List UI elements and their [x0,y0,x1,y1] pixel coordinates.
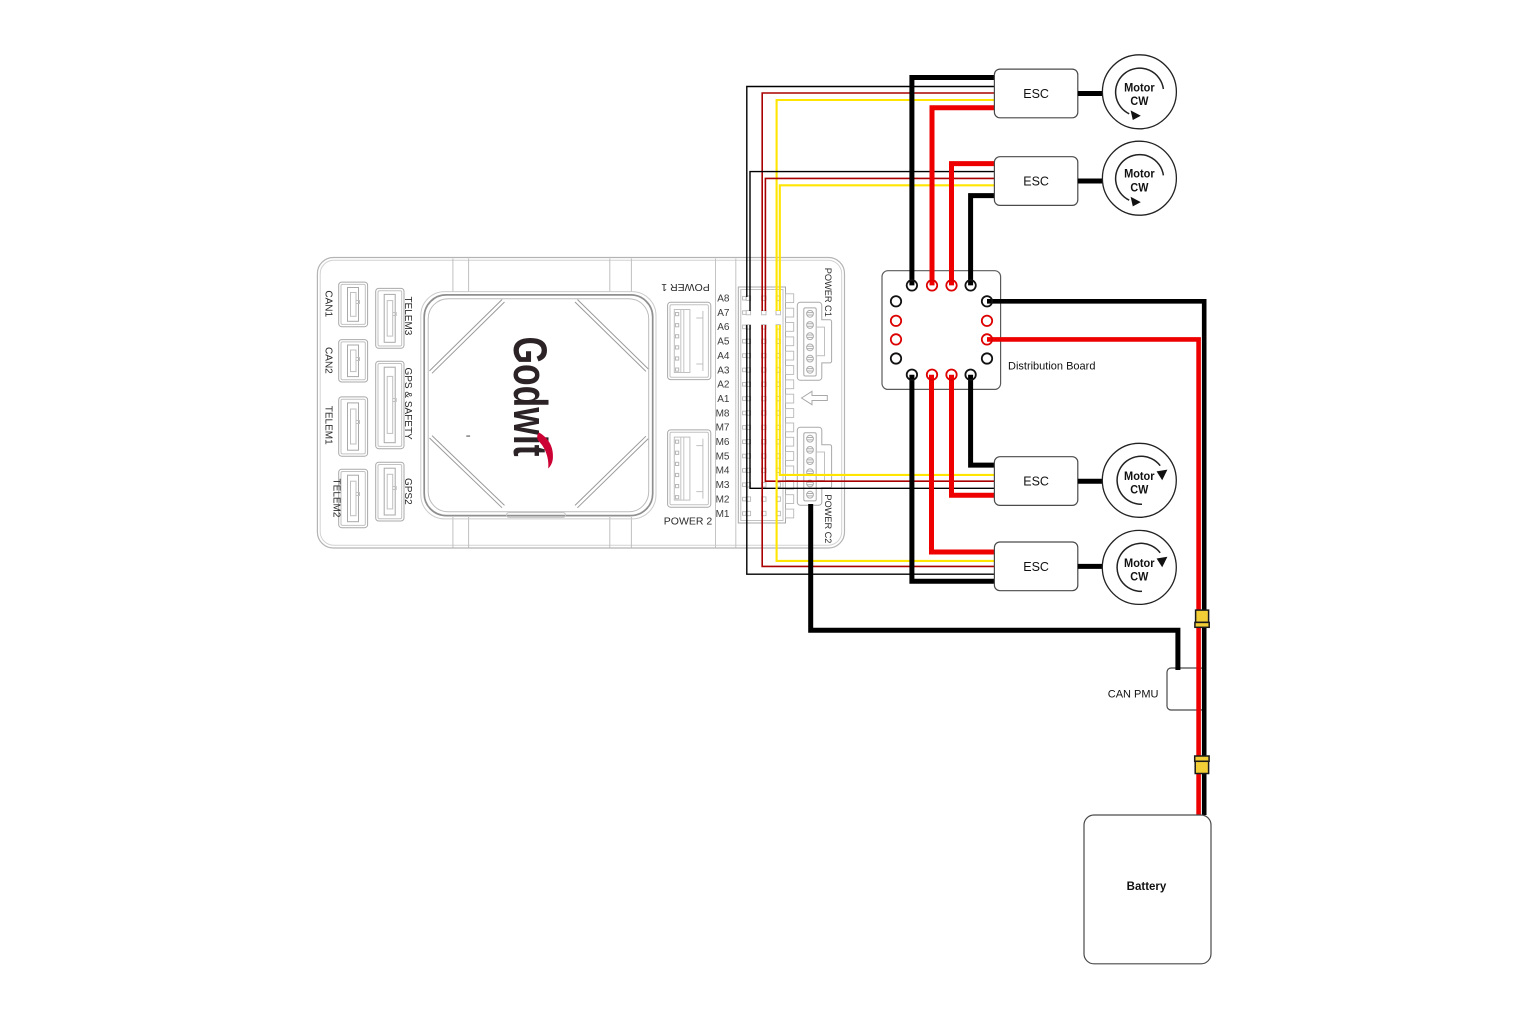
svg-text:CW: CW [1130,570,1149,584]
svg-text:CW: CW [1130,94,1149,108]
svg-text:A8: A8 [717,294,730,305]
svg-text:CAN2: CAN2 [323,347,334,374]
svg-text:M1: M1 [716,509,730,520]
svg-text:GPS2: GPS2 [402,478,413,505]
svg-text:M5: M5 [716,451,730,462]
svg-text:CW: CW [1130,180,1149,194]
svg-text:ESC: ESC [1023,560,1049,574]
svg-text:A5: A5 [717,337,730,348]
svg-text:M2: M2 [716,494,730,505]
svg-text:Motor: Motor [1124,80,1155,94]
svg-text:CAN1: CAN1 [323,290,334,317]
svg-text:TELEM2: TELEM2 [331,479,342,518]
svg-text:M8: M8 [716,408,730,419]
svg-text:M3: M3 [716,480,730,491]
svg-text:M6: M6 [716,437,730,448]
svg-text:POWER 2: POWER 2 [664,516,713,528]
svg-text:A7: A7 [717,308,730,319]
svg-text:M4: M4 [716,466,730,477]
svg-text:ESC: ESC [1023,175,1049,189]
svg-text:A6: A6 [717,322,730,333]
svg-text:A2: A2 [717,380,730,391]
svg-text:A1: A1 [717,394,730,405]
svg-text:GPS & SAFETY: GPS & SAFETY [402,367,413,440]
svg-text:Godwit: Godwit [504,337,557,457]
svg-text:M7: M7 [716,423,730,434]
svg-text:Battery: Battery [1127,881,1167,893]
svg-text:Distribution Board: Distribution Board [1008,361,1095,373]
svg-text:CAN PMU: CAN PMU [1108,689,1159,701]
svg-text:Motor: Motor [1124,556,1155,570]
svg-text:POWER 1: POWER 1 [661,281,710,293]
svg-text:A4: A4 [717,351,730,362]
svg-text:TELEM3: TELEM3 [402,296,413,335]
svg-text:CW: CW [1130,483,1149,497]
svg-text:ESC: ESC [1023,475,1049,489]
svg-text:TELEM1: TELEM1 [323,406,334,445]
svg-text:Motor: Motor [1124,167,1155,181]
svg-text:POWER C2: POWER C2 [823,494,833,543]
svg-text:ESC: ESC [1023,87,1049,101]
svg-text:Motor: Motor [1124,469,1155,483]
svg-text:A3: A3 [717,365,730,376]
svg-text:POWER C1: POWER C1 [823,268,833,317]
